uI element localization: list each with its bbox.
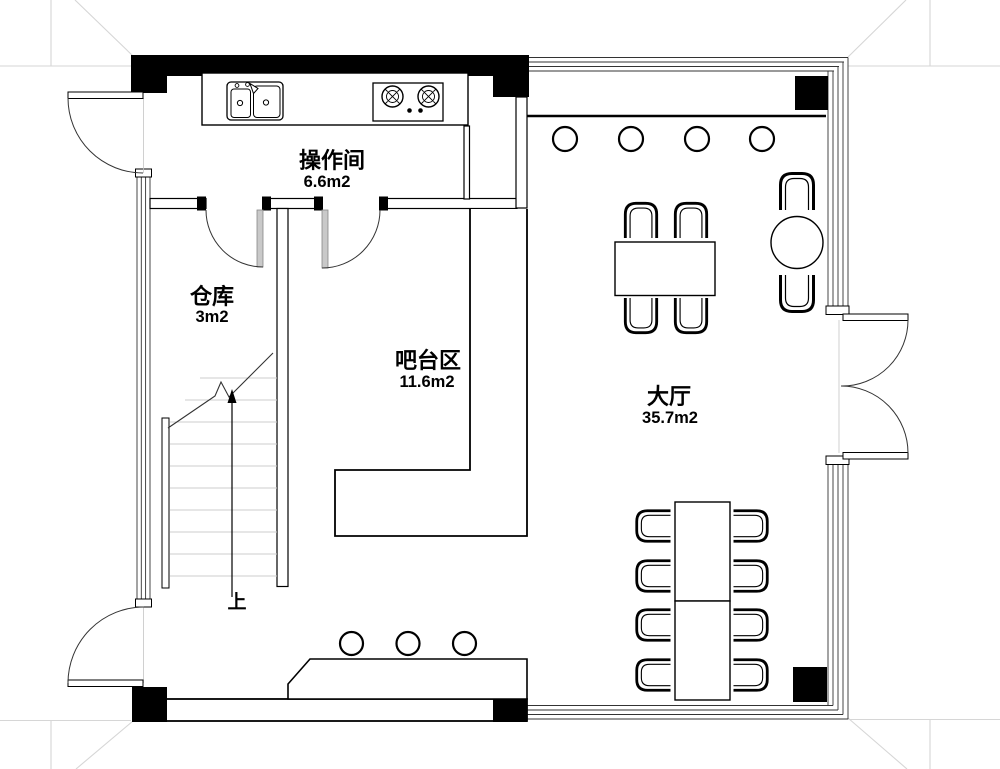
bar-stool bbox=[453, 632, 476, 655]
chair bbox=[637, 610, 671, 641]
bottom-left-wall bbox=[133, 699, 527, 721]
chair bbox=[675, 203, 706, 238]
bar-stool bbox=[619, 127, 643, 151]
kitchen-east-wall bbox=[464, 126, 470, 199]
bar-stool bbox=[397, 632, 420, 655]
long-table bbox=[675, 601, 730, 700]
stair-stringer bbox=[162, 418, 169, 588]
column bbox=[493, 57, 529, 97]
bar-hall-divider-wall bbox=[516, 97, 527, 208]
hall-area: 35.7m2 bbox=[642, 409, 698, 427]
sink bbox=[227, 82, 283, 120]
storage-label: 仓库 bbox=[189, 284, 234, 309]
chair bbox=[734, 511, 768, 542]
kitchen-label: 操作间 bbox=[299, 148, 365, 173]
floor-plan: 上 bbox=[0, 0, 1000, 769]
bar-stools-bottom bbox=[340, 632, 476, 655]
chair bbox=[637, 660, 671, 691]
floor-plan-drawing: 上 bbox=[0, 0, 1000, 769]
bar-label: 吧台区 bbox=[395, 348, 461, 373]
column bbox=[795, 76, 828, 110]
storage-east-wall bbox=[277, 209, 288, 587]
chair bbox=[781, 275, 814, 312]
stair-direction-label: 上 bbox=[227, 591, 246, 613]
chair bbox=[734, 561, 768, 592]
chair bbox=[675, 298, 706, 333]
round-table bbox=[771, 217, 823, 269]
bar-stool bbox=[685, 127, 709, 151]
kitchen-area: 6.6m2 bbox=[304, 173, 351, 191]
stove bbox=[373, 83, 443, 121]
chair bbox=[625, 203, 656, 238]
hall-label: 大厅 bbox=[647, 384, 691, 409]
chair bbox=[625, 298, 656, 333]
column bbox=[793, 667, 827, 702]
bar-stool bbox=[340, 632, 363, 655]
bar-stool bbox=[750, 127, 774, 151]
long-table bbox=[675, 502, 730, 601]
dining-table bbox=[615, 242, 715, 296]
storage-area: 3m2 bbox=[195, 308, 228, 326]
chair bbox=[734, 610, 768, 641]
column bbox=[132, 687, 167, 722]
chair bbox=[637, 561, 671, 592]
chair bbox=[637, 511, 671, 542]
kitchen-worktop bbox=[202, 73, 468, 125]
bar-stool bbox=[553, 127, 577, 151]
chair bbox=[781, 174, 814, 211]
bar-area: 11.6m2 bbox=[399, 373, 454, 391]
bottom-bar-counter bbox=[288, 659, 527, 699]
chair bbox=[734, 660, 768, 691]
column bbox=[131, 55, 167, 93]
